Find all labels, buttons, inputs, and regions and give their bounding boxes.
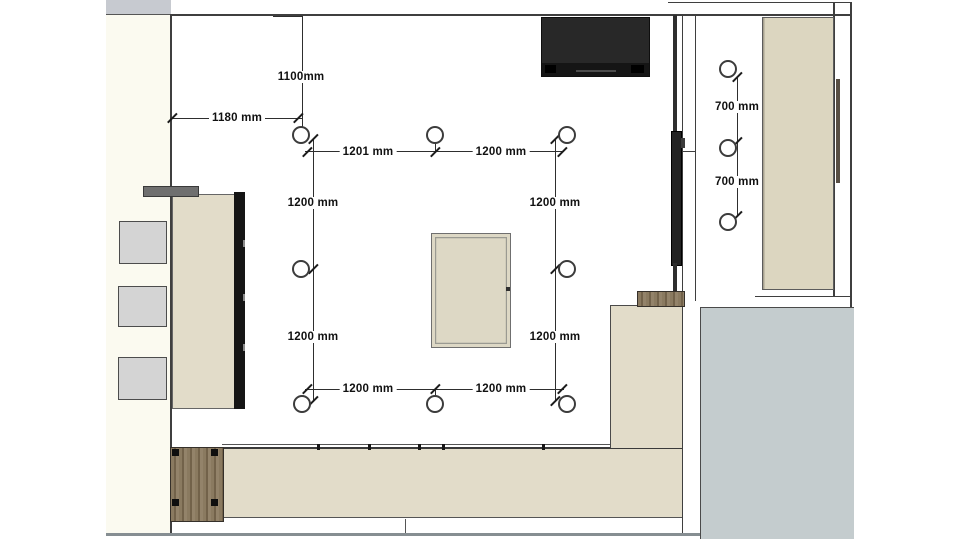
hob-corner <box>172 449 179 456</box>
stool <box>118 357 167 400</box>
edge-notch <box>243 344 246 351</box>
stool <box>119 221 167 264</box>
ceiling-light <box>292 260 310 278</box>
partition-line-left <box>682 15 683 535</box>
counter-bottom-run <box>222 447 682 518</box>
dimension-label-1200-right-upper: 1200 mm <box>527 197 584 209</box>
tv-speaker-line <box>576 70 616 72</box>
ceiling-light <box>719 60 737 78</box>
island-table <box>431 233 511 348</box>
dimension-label-1200-right-lower: 1200 mm <box>527 331 584 343</box>
ceiling-light <box>558 126 576 144</box>
dimension-label-1200-left-lower: 1200 mm <box>285 331 342 343</box>
dimension-label-1180: 1180 mm <box>209 112 265 124</box>
ceiling-light <box>426 126 444 144</box>
hob-corner <box>172 499 179 506</box>
floor-area-gray <box>700 307 854 539</box>
ceiling-light <box>293 395 311 413</box>
ceiling-light <box>292 126 310 144</box>
ceiling-light <box>558 395 576 413</box>
wardrobe-panel <box>762 17 834 290</box>
tv-base-block-left <box>545 65 556 73</box>
dimension-label-700-lower: 700 mm <box>712 176 762 188</box>
counter-seam-tick <box>368 444 371 450</box>
tv-base-block-right <box>631 65 644 73</box>
ceiling-light <box>558 260 576 278</box>
hob-corner <box>211 499 218 506</box>
stool <box>118 286 167 327</box>
left-cabinet <box>172 194 236 409</box>
dimension-label-1200-bottom-right: 1200 mm <box>473 383 530 395</box>
dimension-label-1200-top: 1200 mm <box>473 146 530 158</box>
panel-edge-strip <box>836 79 840 183</box>
counter-gray-bar <box>143 186 199 197</box>
counter-arm-wood-cap <box>637 291 685 307</box>
wall-right-outer <box>850 2 852 307</box>
dimension-label-1201: 1201 mm <box>340 146 397 158</box>
dim-line-1100-cap <box>273 16 303 17</box>
wall-top-outer <box>668 2 852 3</box>
tv <box>541 17 650 77</box>
tv-mount-rail-bottom <box>673 263 677 291</box>
tv-mount-knob <box>681 138 685 148</box>
ceiling-light <box>426 395 444 413</box>
island-table-notch <box>506 287 511 291</box>
edge-notch <box>243 240 246 247</box>
partition-connector <box>682 151 696 152</box>
ceiling-light <box>719 213 737 231</box>
hob-corner <box>211 449 218 456</box>
dimension-label-1200-left-upper: 1200 mm <box>285 197 342 209</box>
counter-seam-tick <box>317 444 320 450</box>
dimension-label-1100: 1100mm <box>275 71 328 83</box>
edge-notch <box>243 294 246 301</box>
plinth-divider <box>405 519 406 534</box>
tv-mount-rail-top <box>673 15 677 133</box>
tv-mount-body <box>671 131 683 266</box>
wall-bottom <box>106 533 702 537</box>
dimension-label-700-upper: 700 mm <box>712 101 762 113</box>
wood-hob-block <box>170 447 224 522</box>
exterior-left-strip <box>106 14 170 533</box>
counter-seam-tick <box>418 444 421 450</box>
dimension-label-1200-bottom-left: 1200 mm <box>340 383 397 395</box>
floor-plan-canvas: 1100mm 1180 mm 1201 mm 1200 mm 1200 mm 1… <box>0 0 960 540</box>
partition-line-right <box>695 15 696 301</box>
ceiling-light <box>719 139 737 157</box>
counter-right-arm <box>610 305 682 448</box>
counter-seam-tick <box>542 444 545 450</box>
left-cabinet-dark-edge <box>234 192 246 409</box>
wall-right-horizontal <box>755 296 851 298</box>
wall-top-left-gray-band <box>106 0 171 15</box>
counter-seam-tick <box>442 444 445 450</box>
